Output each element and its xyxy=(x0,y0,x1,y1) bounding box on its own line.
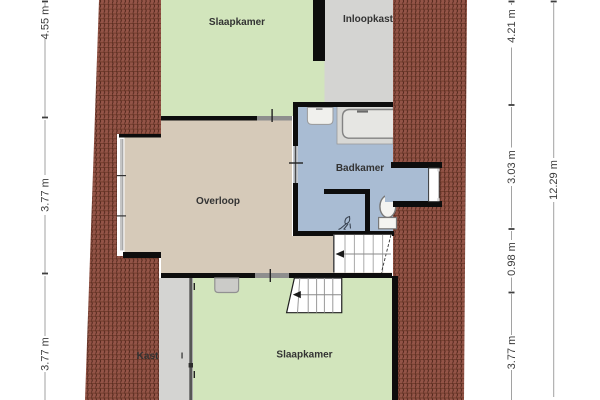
svg-text:Slaapkamer: Slaapkamer xyxy=(276,350,332,361)
svg-text:3.03 m: 3.03 m xyxy=(506,150,518,184)
svg-text:3.77 m: 3.77 m xyxy=(506,336,518,370)
svg-text:3.77 m: 3.77 m xyxy=(39,178,51,212)
svg-text:Kast: Kast xyxy=(137,351,159,362)
svg-text:3.77 m: 3.77 m xyxy=(39,337,51,371)
svg-text:12.29 m: 12.29 m xyxy=(548,160,560,200)
svg-text:Slaapkamer: Slaapkamer xyxy=(209,17,265,28)
svg-text:Inloopkast: Inloopkast xyxy=(343,14,394,25)
svg-text:4.21 m: 4.21 m xyxy=(506,9,518,43)
svg-text:Overloop: Overloop xyxy=(196,196,240,207)
svg-text:0.98 m: 0.98 m xyxy=(506,242,518,276)
svg-text:Badkamer: Badkamer xyxy=(336,163,384,174)
svg-text:4.55 m: 4.55 m xyxy=(39,6,51,40)
